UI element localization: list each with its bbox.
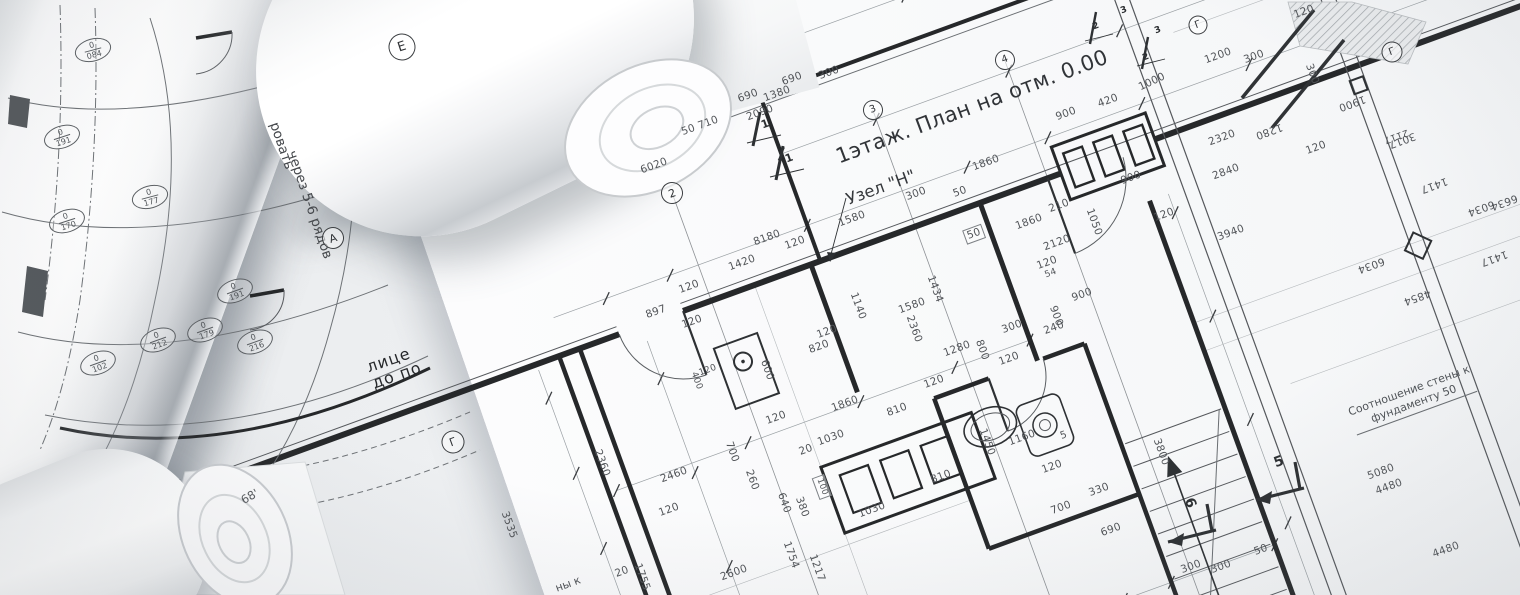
blueprint-photo-scene: 1этаж. План на отм. 0.00 Узел "Н" Соотно… (0, 0, 1520, 595)
roll-end-curl-bl (0, 0, 1520, 595)
